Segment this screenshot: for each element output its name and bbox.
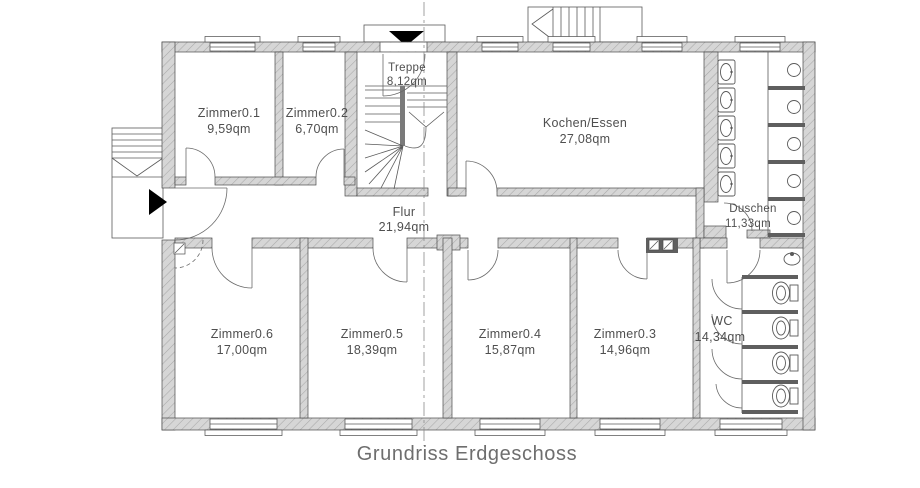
room-label-kochen-essen: Kochen/Essen xyxy=(543,116,627,130)
room-area-duschen: 11,33qm xyxy=(725,218,771,230)
stair-stringer xyxy=(400,86,405,146)
room-label-duschen: Duschen xyxy=(729,203,777,215)
room-area-zimmer06: 17,00qm xyxy=(217,343,268,357)
room-area-kochen-essen: 27,08qm xyxy=(560,132,611,146)
entrance-arrow-west-icon xyxy=(149,189,167,215)
room-area-flur: 21,94qm xyxy=(379,220,430,234)
room-area-wc: 14,34qm xyxy=(695,330,746,344)
room-area-zimmer03: 14,96qm xyxy=(600,343,651,357)
exterior-stair-left xyxy=(112,128,167,238)
floorplan-canvas: Zimmer0.1 9,59qm Zimmer0.2 6,70qm Treppe… xyxy=(0,0,920,488)
room-label-zimmer03: Zimmer0.3 xyxy=(594,327,656,341)
floor-plan-drawing: Zimmer0.1 9,59qm Zimmer0.2 6,70qm Treppe… xyxy=(0,0,920,488)
room-area-zimmer01: 9,59qm xyxy=(207,122,251,136)
room-labels: Zimmer0.1 9,59qm Zimmer0.2 6,70qm Treppe… xyxy=(198,62,777,357)
walls xyxy=(162,42,815,430)
room-area-treppe: 8,12qm xyxy=(387,76,427,88)
toilet-row xyxy=(773,282,799,407)
room-label-zimmer05: Zimmer0.5 xyxy=(341,327,403,341)
plan-caption: Grundriss Erdgeschoss xyxy=(357,443,577,465)
room-label-zimmer04: Zimmer0.4 xyxy=(479,327,541,341)
stair-treppe xyxy=(365,86,447,189)
room-area-zimmer05: 18,39qm xyxy=(347,343,398,357)
room-label-zimmer06: Zimmer0.6 xyxy=(211,327,273,341)
room-label-zimmer01: Zimmer0.1 xyxy=(198,106,260,120)
room-area-zimmer02: 6,70qm xyxy=(295,122,339,136)
room-label-treppe: Treppe xyxy=(388,62,426,74)
room-label-flur: Flur xyxy=(393,205,416,219)
room-label-wc: WC xyxy=(711,314,732,328)
room-label-zimmer02: Zimmer0.2 xyxy=(286,106,348,120)
washbasin-row xyxy=(718,60,735,196)
room-area-zimmer04: 15,87qm xyxy=(485,343,536,357)
